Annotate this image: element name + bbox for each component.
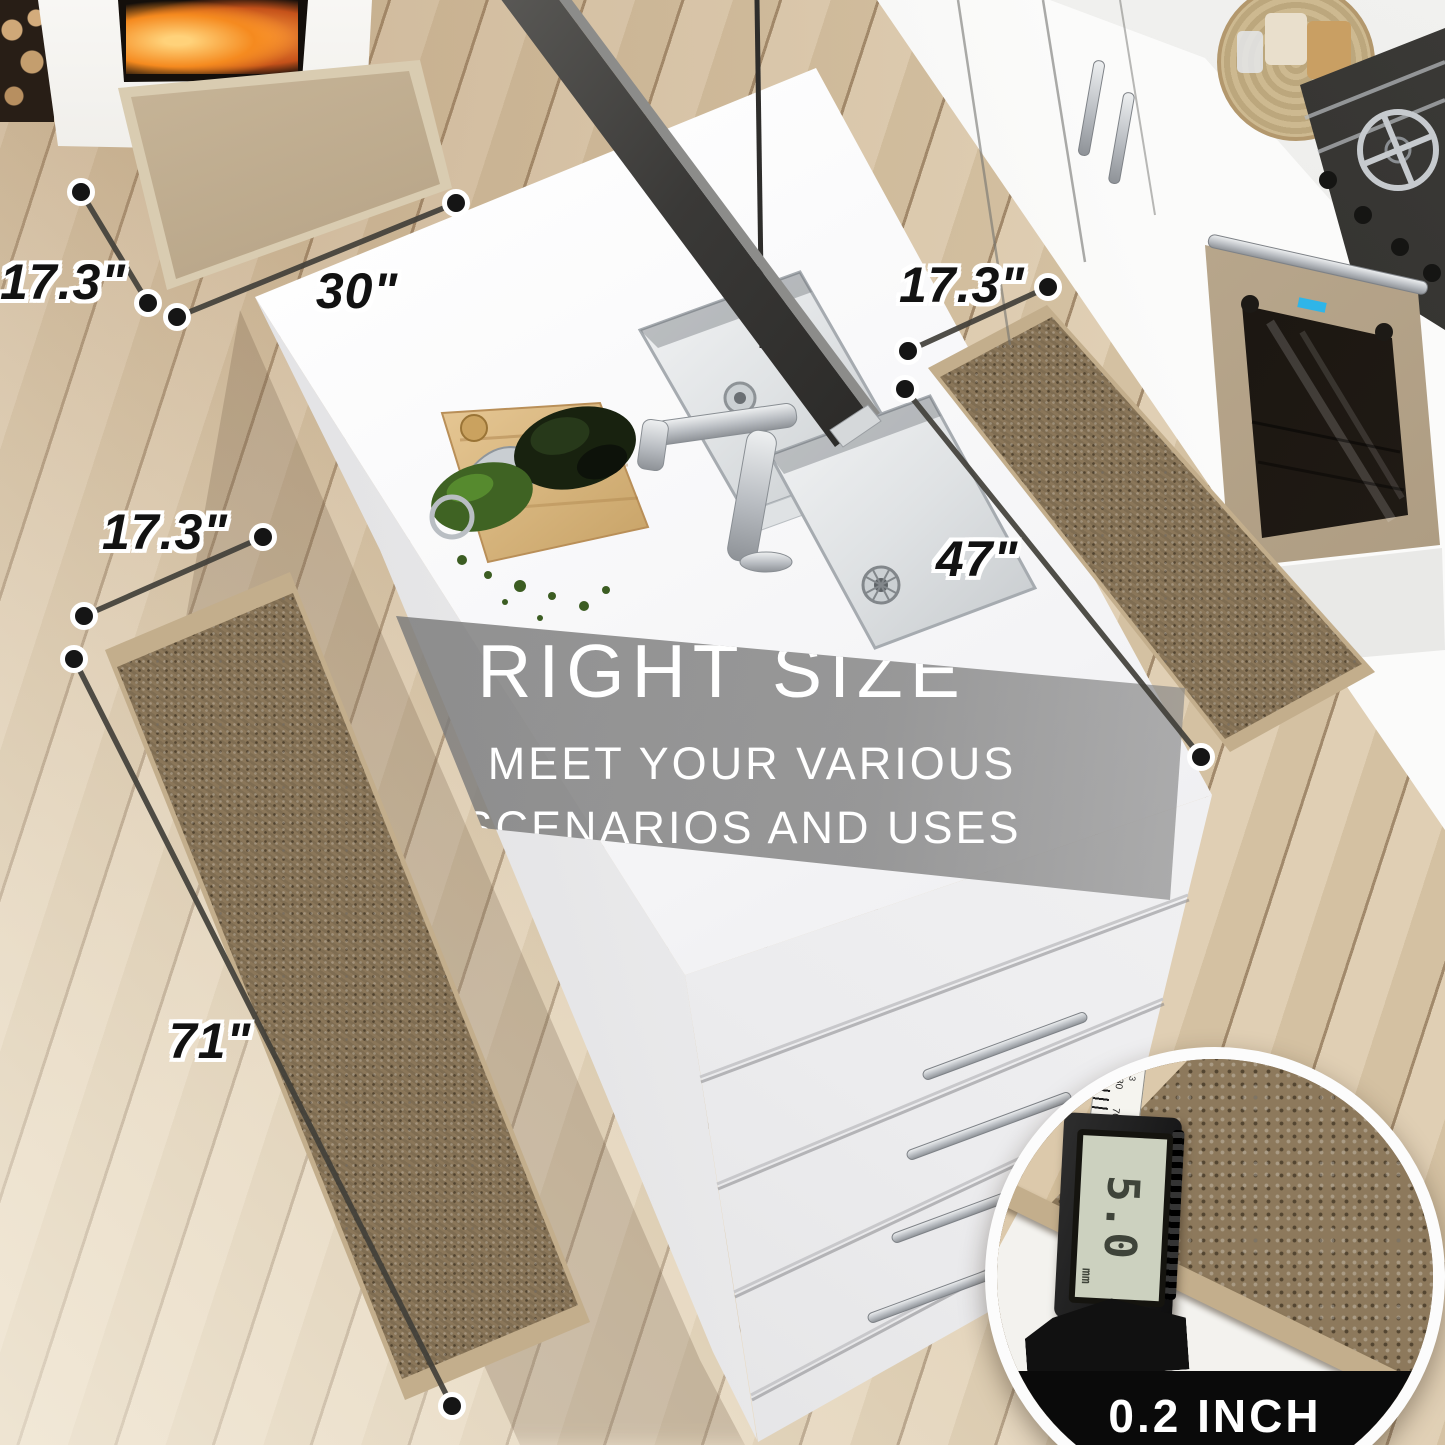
hearth-mat-width-label: 17.3" — [0, 253, 126, 311]
runner-mat-length-label: 71" — [169, 1012, 251, 1070]
thickness-inset: 90 80 70 3 5.0 mm 0.2 INCH — [985, 1047, 1445, 1445]
ruler-inch-number: 3 — [1127, 1076, 1138, 1082]
side-mat-length-label: 47" — [936, 530, 1018, 588]
thickness-label: 0.2 INCH — [985, 1389, 1445, 1443]
caliper-unit: mm — [1078, 1268, 1094, 1284]
caliper-lcd: 5.0 mm — [1069, 1129, 1174, 1308]
runner-mat-width-label: 17.3" — [102, 503, 228, 561]
thickness-band: 0.2 INCH — [985, 1371, 1445, 1445]
product-scene: Manual — [0, 0, 1445, 1445]
ruler-number: 80 — [1112, 1077, 1124, 1089]
dim-line-runner-length — [74, 659, 452, 1406]
side-mat-width-label: 17.3" — [899, 256, 1025, 314]
hearth-mat-length-label: 30" — [316, 262, 398, 320]
caliper-body: 5.0 mm — [1054, 1112, 1183, 1324]
caliper-reading: 5.0 — [1093, 1174, 1148, 1262]
